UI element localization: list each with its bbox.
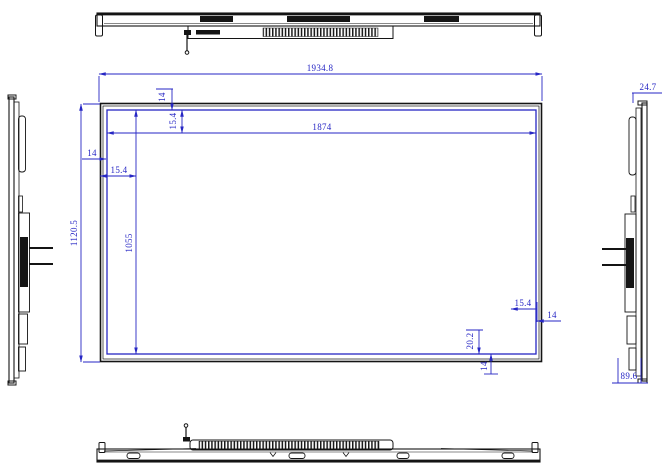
dim-label-total-depth: 89.6 xyxy=(621,371,638,381)
dim-label-front-depth: 24.7 xyxy=(640,82,657,92)
dim-right-inset: 14 xyxy=(537,310,561,321)
dim-label-top-bezel: 15.4 xyxy=(168,112,178,129)
dim-top-bezel: 15.4 xyxy=(168,110,182,133)
top-antenna-base xyxy=(184,30,191,35)
right-small-step xyxy=(631,196,635,212)
top-view xyxy=(96,13,542,54)
right-handle-bump xyxy=(629,117,636,175)
right-back-panel xyxy=(636,108,641,376)
dim-top-inset: 14 xyxy=(156,89,173,110)
front-inner-frame xyxy=(103,106,539,359)
dim-label-left-bezel: 15.4 xyxy=(111,165,128,175)
top-vent-slot-right xyxy=(424,16,459,22)
bottom-speaker-grille xyxy=(199,441,379,449)
dim-label-left-inset: 14 xyxy=(87,148,97,158)
dim-left-bezel: 15.4 xyxy=(100,165,136,176)
front-view: 1934.8 1874 1120.5 1055 14 15.4 xyxy=(69,63,561,374)
left-side-view xyxy=(8,95,53,385)
dim-outer-height: 1120.5 xyxy=(69,104,100,362)
front-outer-frame xyxy=(101,104,542,362)
top-vent-grille xyxy=(263,28,378,37)
left-lower-box-2 xyxy=(19,347,26,371)
right-lower-box xyxy=(627,316,636,344)
dim-active-height: 1055 xyxy=(124,110,136,354)
dim-right-bezel: 15.4 xyxy=(511,298,537,322)
dim-label-outer-width: 1934.8 xyxy=(307,63,334,73)
bottom-notch-1 xyxy=(270,453,276,457)
dim-left-inset: 14 xyxy=(82,148,106,159)
top-connector-label xyxy=(196,30,220,35)
top-vent-slot-left xyxy=(200,16,233,22)
dim-label-bottom-inset: 14 xyxy=(479,361,489,371)
dim-front-depth: 24.7 xyxy=(632,82,662,103)
dim-label-bottom-bezel: 20.2 xyxy=(465,333,475,350)
bottom-foot-1 xyxy=(127,453,140,459)
right-lower-box-2 xyxy=(629,348,636,370)
left-lower-box xyxy=(19,314,28,344)
bottom-antenna-base xyxy=(183,437,190,442)
right-glass-edge xyxy=(642,103,647,381)
bottom-foot-4 xyxy=(502,453,514,459)
technical-drawing-canvas: 1934.8 1874 1120.5 1055 14 15.4 xyxy=(0,0,662,473)
left-connector-block xyxy=(20,237,28,287)
front-active-area xyxy=(107,110,536,354)
bottom-view xyxy=(97,424,540,462)
dim-label-top-inset: 14 xyxy=(157,92,167,102)
dim-bottom-bezel: 20.2 xyxy=(465,330,483,354)
bottom-notch-2 xyxy=(343,453,349,457)
right-connector-block xyxy=(626,238,634,288)
dim-label-active-height: 1055 xyxy=(124,233,134,252)
right-side-view: 24.7 89.6 xyxy=(602,82,662,383)
dim-label-outer-height: 1120.5 xyxy=(69,220,79,246)
left-glass-edge xyxy=(9,97,14,383)
dim-label-right-inset: 14 xyxy=(547,310,557,320)
bottom-foot-2 xyxy=(289,453,305,459)
bottom-antenna-tip xyxy=(184,424,188,428)
dim-label-right-bezel: 15.4 xyxy=(515,298,532,308)
top-antenna-tip xyxy=(185,51,189,55)
left-handle-bump xyxy=(19,116,26,172)
dim-label-active-width: 1874 xyxy=(312,122,331,132)
top-vent-slot-center xyxy=(287,16,350,22)
bottom-foot-3 xyxy=(397,453,409,459)
dim-bottom-inset: 14 xyxy=(479,354,498,374)
